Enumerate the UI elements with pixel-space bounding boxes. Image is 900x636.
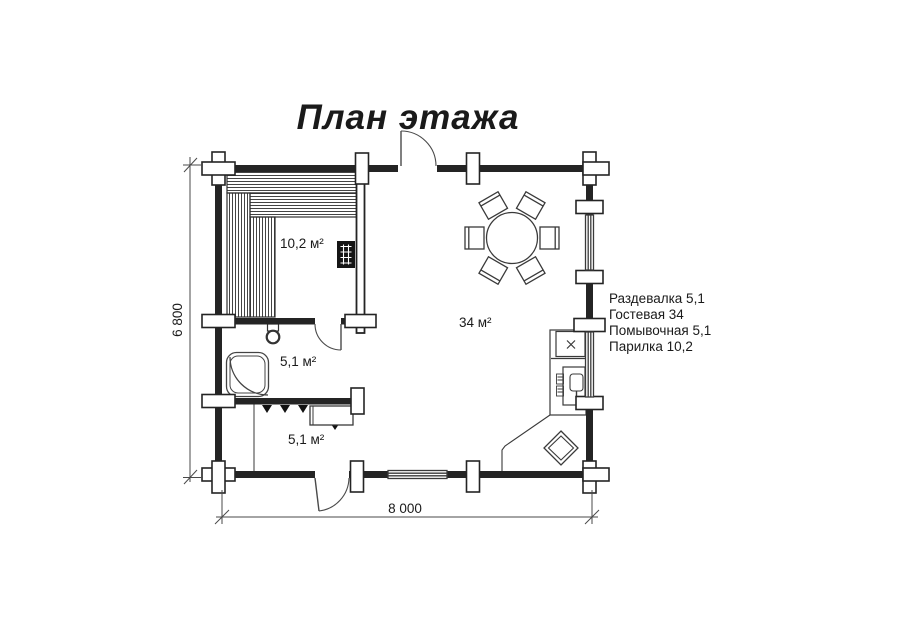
legend-item: Гостевая 34 bbox=[609, 307, 684, 322]
sauna-area-label: 10,2 м² bbox=[280, 236, 324, 251]
window-right-top bbox=[586, 215, 594, 270]
wash-area-label: 5,1 м² bbox=[280, 354, 317, 369]
window-bottom bbox=[388, 471, 447, 479]
dimension-height bbox=[183, 157, 203, 484]
sauna-bench-top-tier2 bbox=[250, 193, 357, 217]
dimension-height-label: 6 800 bbox=[170, 303, 185, 337]
sauna-bench-top-tier1 bbox=[227, 170, 357, 193]
legend-item: Парилка 10,2 bbox=[609, 339, 693, 354]
entrance-door-bottom bbox=[315, 478, 349, 511]
sauna-door bbox=[315, 324, 341, 350]
hook-icon bbox=[262, 405, 272, 413]
chair-icon bbox=[540, 227, 559, 249]
coat-hooks bbox=[262, 405, 308, 413]
window-right-bottom bbox=[586, 332, 594, 397]
round-table-icon bbox=[487, 213, 538, 264]
chair-icon bbox=[465, 227, 484, 249]
dining-set bbox=[465, 192, 559, 284]
floor-plan-drawing: План этажа bbox=[0, 0, 900, 636]
dressing-area-label: 5,1 м² bbox=[288, 432, 325, 447]
dimension-width-label: 8 000 bbox=[388, 501, 422, 516]
sauna-bench-left-tier2 bbox=[250, 217, 275, 317]
hearth-line bbox=[502, 415, 550, 471]
washbasin-icon bbox=[267, 324, 280, 343]
corner-shower-icon bbox=[227, 353, 269, 397]
hook-icon bbox=[280, 405, 290, 413]
room-legend: Раздевалка 5,1 Гостевая 34 Помывочная 5,… bbox=[609, 291, 711, 354]
sauna-stove-icon bbox=[337, 241, 355, 268]
legend-item: Помывочная 5,1 bbox=[609, 323, 711, 338]
guest-area-label: 34 м² bbox=[459, 315, 492, 330]
hook-icon bbox=[298, 405, 308, 413]
dressing-bench-icon bbox=[310, 406, 353, 430]
corner-fireplace-icon bbox=[502, 415, 578, 471]
sauna-bench-left-tier1 bbox=[227, 193, 250, 317]
floor-plan-page: План этажа bbox=[0, 0, 900, 636]
legend-item: Раздевалка 5,1 bbox=[609, 291, 705, 306]
sauna-east-wall bbox=[357, 172, 365, 333]
